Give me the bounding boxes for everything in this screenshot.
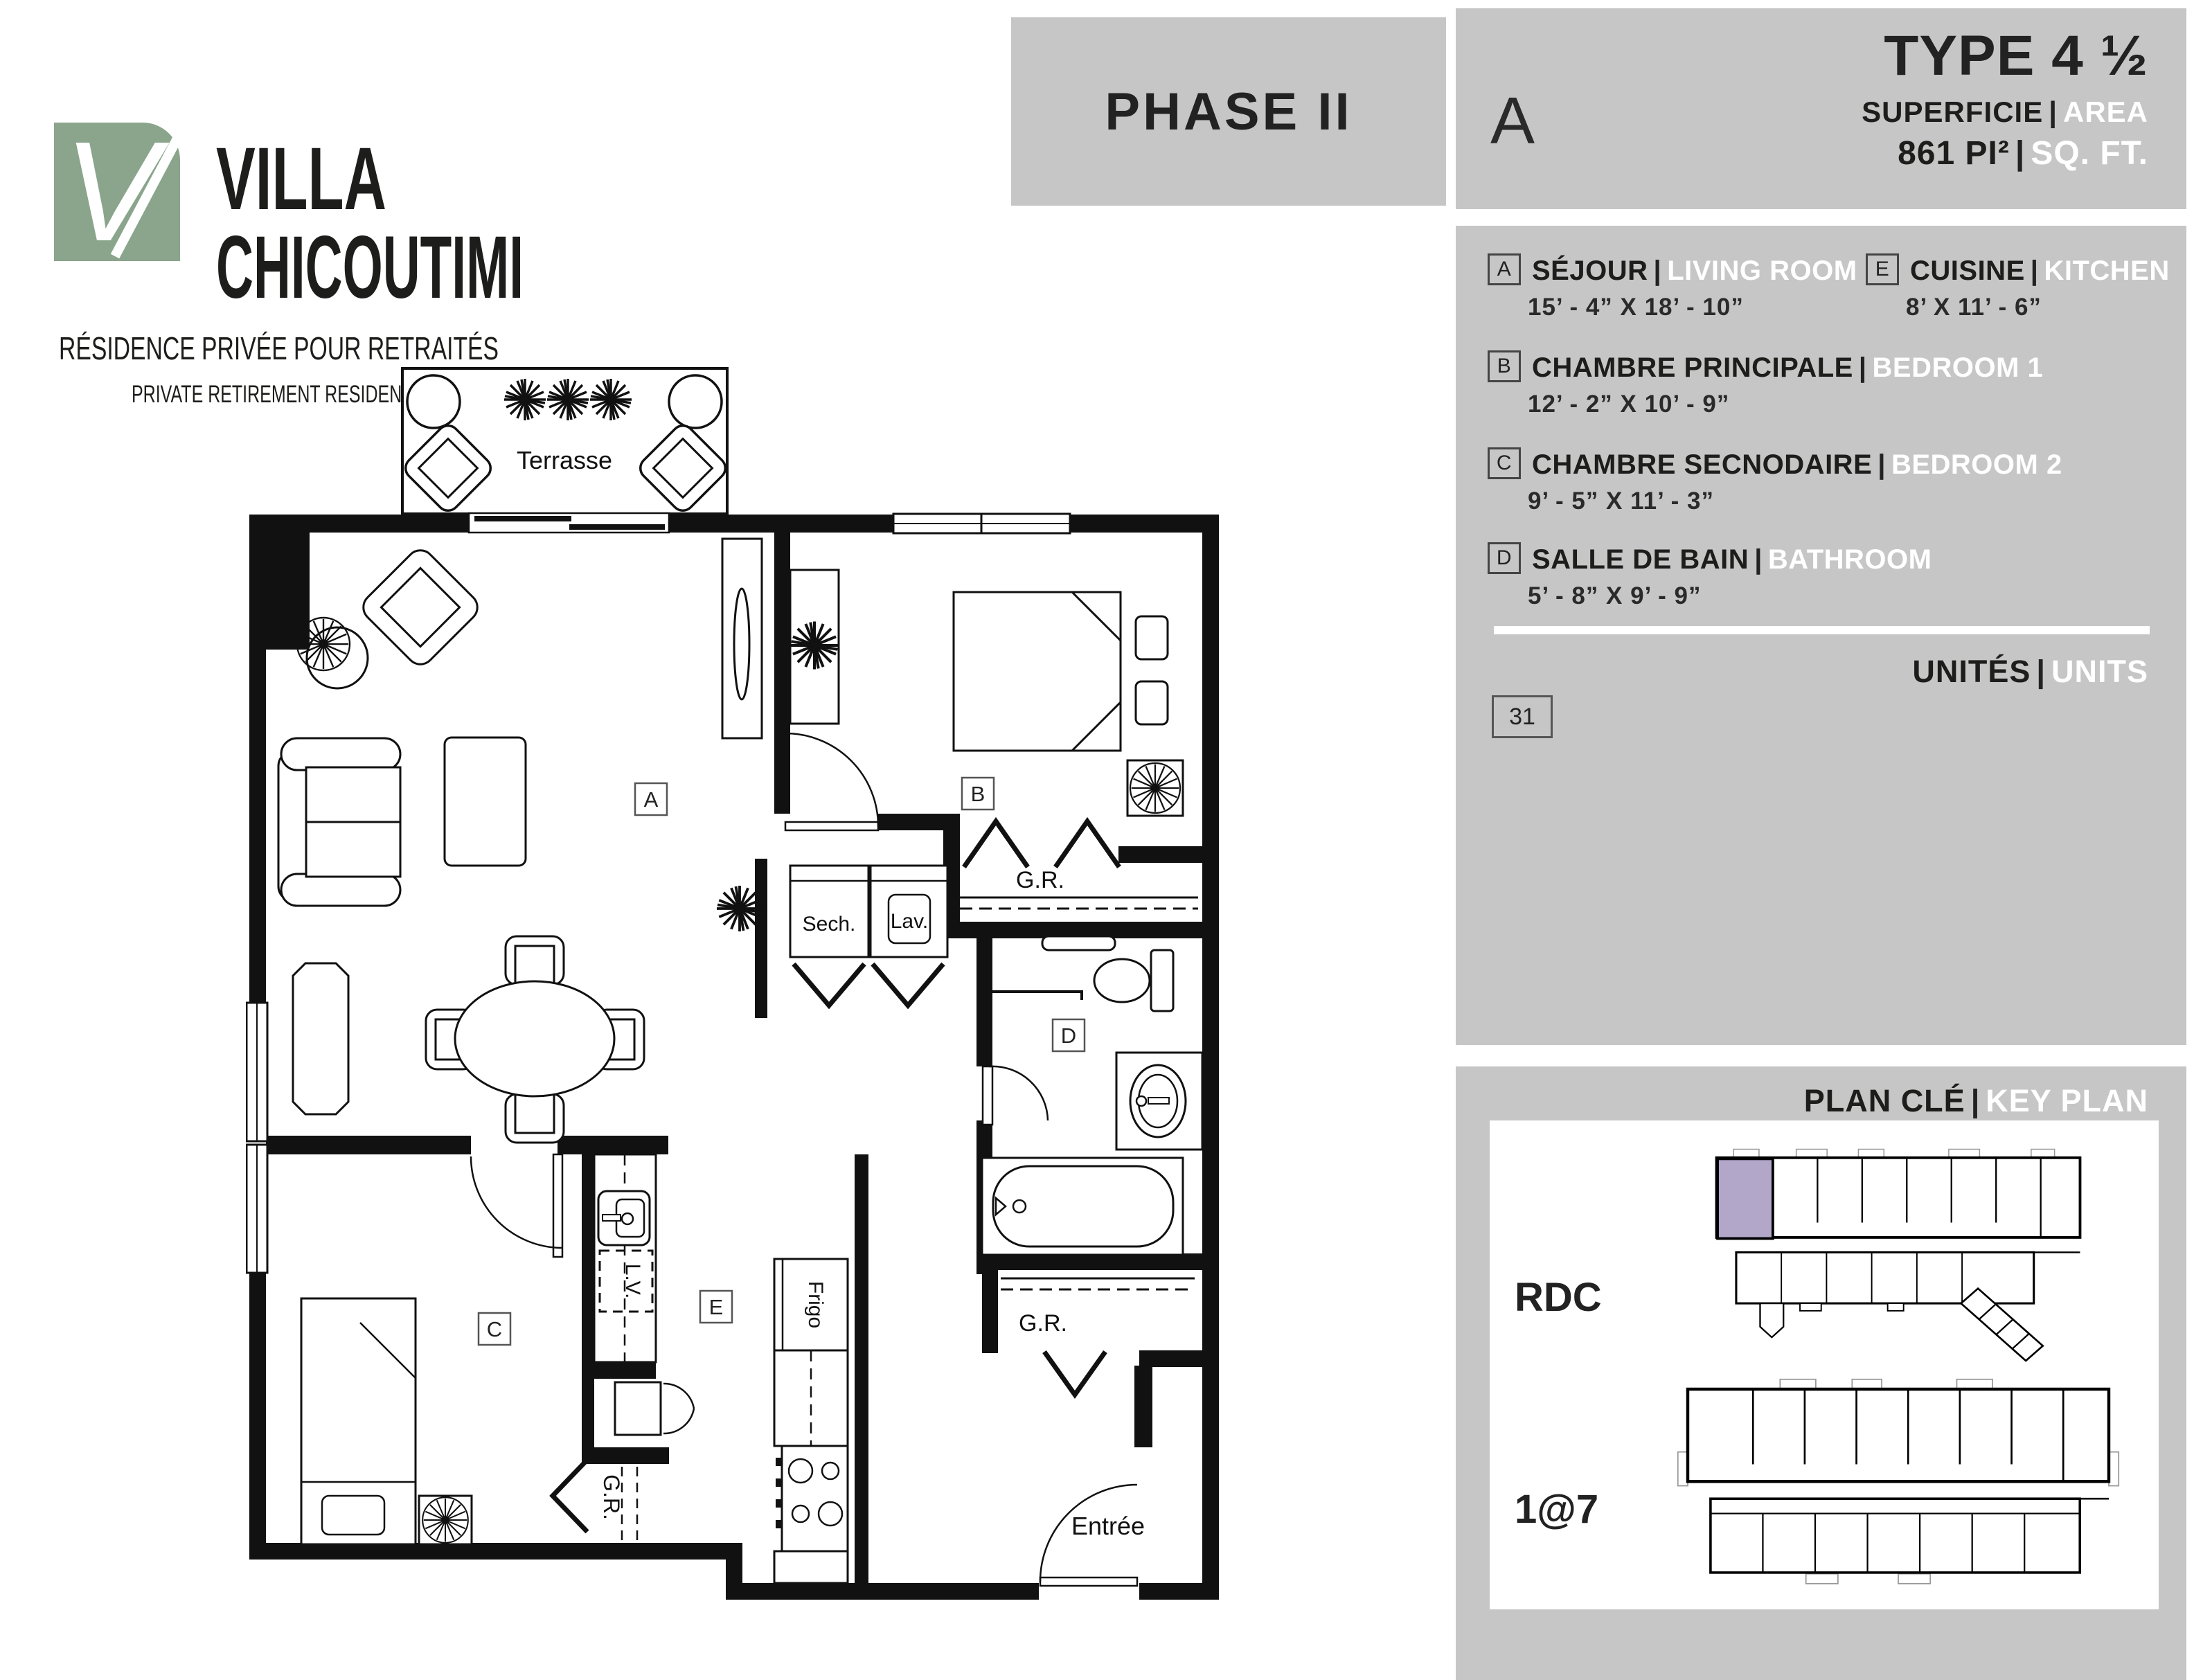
room-label-e: E [709,1295,724,1319]
bifold-door [873,964,943,1006]
dryer [790,866,868,957]
legend-dims-chambre1: 12’ - 2” X 10’ - 9” [1528,391,1729,418]
pillow [322,1496,384,1535]
entry-closet: G.R. [1001,1278,1195,1395]
bedroom1-closet: G.R. [960,821,1198,909]
units-fr: UNITÉS [1912,654,2031,689]
plant-icon [297,618,350,670]
key-plan-rdc-drawing [1652,1148,2144,1377]
laundry-closet: Sech. Lav. [790,866,947,1006]
room-legend-panel: ASÉJOUR|LIVING ROOM 15’ - 4” X 18’ - 10”… [1456,226,2186,1045]
legend-name-en: BEDROOM 1 [1873,352,2044,383]
bifold-door [964,821,1028,867]
dryer-label: Sech. [803,913,856,936]
separator: | [2043,96,2063,128]
separator: | [2025,256,2044,286]
building-outline [1688,1389,2109,1481]
legend-item-chambre1: BCHAMBRE PRINCIPALE|BEDROOM 1 [1488,350,2043,384]
dishwasher-label: L.V. [621,1264,644,1299]
room-label-a: A [644,787,659,812]
plant-icon [547,379,589,420]
dining-set [426,936,644,1143]
bifold-door [1055,821,1119,867]
unit-letter: A [1490,83,1535,159]
separator: | [1648,256,1668,286]
legend-badge-b: B [1488,350,1521,382]
separator: | [1872,449,1891,480]
legend-name-en: LIVING ROOM [1667,256,1857,286]
separator: | [2031,654,2051,689]
legend-badge-d: D [1488,542,1521,574]
legend-badge-c: C [1488,447,1521,479]
patio-table [407,375,460,428]
patio-table [669,375,722,428]
separator: | [2010,135,2031,172]
separator: | [1749,544,1768,575]
legend-item-sdb: DSALLE DE BAIN|BATHROOM [1488,542,1932,575]
bay-projection [1760,1303,1783,1337]
units-heading: UNITÉS|UNITS [1912,654,2148,690]
bedroom2-door [471,1154,562,1257]
room-label-d: D [1061,1024,1076,1048]
area-value-en: SQ. FT. [2031,135,2148,172]
vanity [1116,1053,1202,1150]
sideboard [293,963,348,1114]
key-plan-1at7-drawing [1652,1378,2144,1600]
legend-dims-cuisine: 8’ X 11’ - 6” [1906,294,2042,321]
closet-label: G.R. [1019,1310,1067,1337]
bifold-door [794,964,864,1006]
legend-name-en: BEDROOM 2 [1891,449,2062,480]
bottom-projections [1800,1303,1904,1311]
plant-icon [504,379,546,420]
legend-dims-sejour: 15’ - 4” X 18’ - 10” [1528,294,1744,321]
key-plan-title-fr: PLAN CLÉ [1804,1083,1965,1118]
entry-door-leaf [1040,1578,1137,1586]
floor-label-1at7: 1@7 [1515,1486,1598,1532]
highlighted-unit [1718,1159,1773,1238]
brand-name-line2: CHICOUTIMI [216,218,524,317]
units-en: UNITS [2051,654,2148,689]
legend-name-fr: SÉJOUR [1532,256,1648,286]
legend-item-cuisine: ECUISINE|KITCHEN [1866,253,2170,287]
legend-name-fr: CHAMBRE PRINCIPALE [1532,352,1853,383]
toilet [1094,950,1173,1011]
bedroom2-furniture [301,1298,472,1544]
pillow [1136,681,1168,724]
stove [776,1446,848,1551]
unit-type-title: TYPE 4 ½ [1884,24,2148,89]
floor-label-rdc: RDC [1515,1274,1602,1321]
terrasse: Terrasse [401,368,730,515]
key-plan-title: PLAN CLÉ|KEY PLAN [1804,1083,2148,1119]
unit-header-panel: A TYPE 4 ½ SUPERFICIE|AREA 861 PI²|SQ. F… [1456,8,2186,209]
counter [774,1551,848,1583]
key-plan-title-en: KEY PLAN [1986,1083,2148,1118]
legend-name-fr: CUISINE [1910,256,2025,286]
towel-bar [1042,936,1115,950]
pillow [1136,616,1168,659]
legend-name-fr: SALLE DE BAIN [1532,544,1749,575]
legend-name-en: KITCHEN [2044,256,2169,286]
room-label-b: B [971,782,985,806]
plant-icon [590,379,632,420]
fridge: Frigo [774,1259,848,1350]
plant-icon [1130,763,1180,813]
bathroom [982,936,1202,1255]
unit-number-badge: 31 [1492,695,1553,738]
bifold-door [1044,1352,1105,1395]
legend-item-sejour: ASÉJOUR|LIVING ROOM [1488,253,1857,287]
brand-name-line1: VILLA [216,129,386,229]
separator: | [1853,352,1873,383]
bathtub [982,1158,1183,1255]
living-room-furniture [278,539,839,1143]
bedroom1-door [785,733,878,830]
legend-dims-sdb: 5’ - 8” X 9’ - 9” [1528,582,1701,610]
superficie-en: AREA [2063,96,2148,128]
legend-badge-e: E [1866,253,1899,285]
legend-divider [1494,626,2150,634]
entrance-label: Entrée [1071,1512,1145,1540]
armchair [357,544,483,670]
washer-label: Lav. [891,910,928,933]
floor-plan-drawing: Terrasse [246,357,1229,1617]
counter [594,1154,656,1362]
coffee-table [445,738,526,866]
area-value-fr: 861 PI² [1898,135,2010,172]
fridge-label: Frigo [804,1281,827,1328]
legend-badge-a: A [1488,253,1521,285]
key-plan-panel: PLAN CLÉ|KEY PLAN RDC 1@7 [1456,1066,2186,1680]
legend-name-fr: CHAMBRE SECNODAIRE [1532,449,1872,480]
legend-dims-chambre2: 9’ - 5” X 11’ - 3” [1528,488,1714,515]
phase-banner: PHASE II [1011,17,1446,206]
superficie-line: SUPERFICIE|AREA [1862,96,2148,129]
bifold-door [553,1460,587,1532]
legend-name-en: BATHROOM [1768,544,1932,575]
terrasse-label: Terrasse [517,446,612,474]
bathroom-door [983,1066,1048,1125]
pantry [615,1382,694,1435]
tv-console [722,539,762,738]
sofa [278,738,400,906]
kitchen-sink [598,1191,650,1245]
grab-bar [992,992,1082,1000]
area-line: 861 PI²|SQ. FT. [1898,134,2148,172]
legend-item-chambre2: CCHAMBRE SECNODAIRE|BEDROOM 2 [1488,447,2062,481]
key-plan-card: RDC 1@7 [1490,1120,2159,1609]
separator: | [1965,1083,1986,1118]
room-label-c: C [487,1317,502,1341]
closet-label: G.R. [599,1474,624,1520]
plant-icon [422,1497,468,1543]
closet-label: G.R. [1016,867,1064,893]
entrance: Entrée [1040,1485,1145,1586]
plant-icon [717,886,762,931]
superficie-fr: SUPERFICIE [1862,96,2043,128]
patio-sliding-door [469,513,669,533]
